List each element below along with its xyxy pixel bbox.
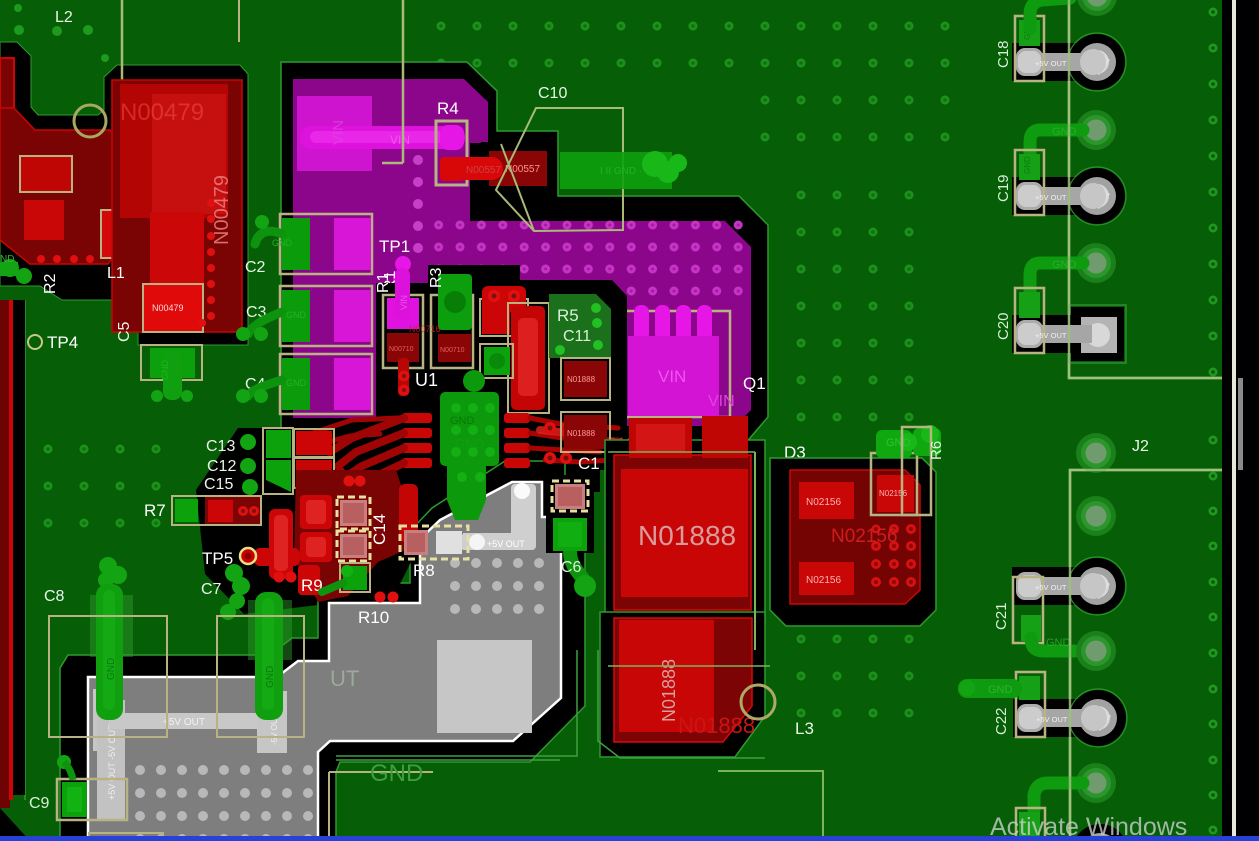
svg-text:N01888: N01888	[567, 375, 596, 384]
svg-text:N01888: N01888	[678, 713, 755, 738]
svg-text:+5V OUT: +5V OUT	[1035, 193, 1067, 202]
svg-text:N00479: N00479	[120, 99, 204, 126]
svg-text:U1: U1	[415, 370, 438, 390]
svg-text:N01888: N01888	[567, 429, 596, 438]
svg-text:N00557: N00557	[466, 165, 501, 176]
svg-text:R4: R4	[437, 99, 459, 118]
svg-text:C22: C22	[993, 707, 1010, 735]
svg-text:C15: C15	[204, 476, 233, 493]
svg-text:N01888: N01888	[638, 520, 736, 551]
svg-text:+5V OUT: +5V OUT	[1035, 583, 1067, 592]
svg-text:GND: GND	[886, 437, 911, 449]
svg-text:L2: L2	[55, 9, 73, 26]
svg-text:C20: C20	[995, 312, 1012, 340]
svg-text:+5V OUT: +5V OUT	[1035, 59, 1067, 68]
svg-text:C14: C14	[370, 514, 389, 545]
svg-text:C19: C19	[995, 174, 1012, 202]
svg-text:GND: GND	[160, 360, 170, 381]
svg-text:C5: C5	[116, 321, 133, 342]
svg-text:VIN: VIN	[658, 367, 686, 386]
svg-text:+5V OUT -5V OUT: +5V OUT -5V OUT	[107, 724, 117, 800]
svg-text:N01888: N01888	[659, 659, 679, 722]
svg-text:VIN: VIN	[399, 295, 409, 310]
svg-text:J2: J2	[1132, 438, 1149, 455]
svg-text:R6: R6	[928, 441, 945, 460]
svg-text:L1: L1	[107, 265, 125, 282]
svg-text:C7: C7	[201, 581, 222, 598]
svg-text:R5: R5	[557, 306, 579, 325]
svg-text:Q1: Q1	[743, 374, 766, 393]
svg-text:C10: C10	[538, 85, 567, 102]
svg-text:GND: GND	[272, 238, 293, 248]
svg-text:TP5: TP5	[202, 549, 233, 568]
svg-text:N00716: N00716	[409, 324, 441, 334]
svg-text:C21: C21	[993, 602, 1010, 630]
svg-text:N00710: N00710	[440, 347, 465, 354]
svg-text:+5V OUT: +5V OUT	[163, 717, 205, 728]
svg-text:GND: GND	[455, 436, 484, 451]
svg-text:L3: L3	[795, 719, 814, 738]
svg-text:R3: R3	[428, 267, 445, 288]
svg-text:N00710: N00710	[389, 346, 414, 353]
svg-text:R7: R7	[144, 501, 166, 520]
svg-text:VIN: VIN	[390, 133, 410, 147]
svg-text:C11: C11	[563, 328, 591, 345]
svg-text:GND: GND	[988, 684, 1013, 696]
svg-text:GND: GND	[265, 666, 276, 688]
svg-text:N00479: N00479	[152, 303, 184, 313]
svg-text:N02156: N02156	[806, 497, 841, 508]
svg-text:TP1: TP1	[379, 237, 410, 256]
svg-text:TP4: TP4	[47, 333, 78, 352]
svg-text:GND: GND	[1023, 156, 1032, 174]
svg-text:+5V OUT: +5V OUT	[487, 539, 525, 549]
svg-text:UT: UT	[330, 666, 359, 691]
svg-text:R8: R8	[413, 561, 435, 580]
svg-text:C9: C9	[29, 795, 50, 812]
svg-text:N00479: N00479	[211, 175, 233, 245]
svg-text:+5V OUT: +5V OUT	[1036, 715, 1068, 724]
svg-text:N02156: N02156	[831, 526, 898, 547]
svg-text:C12: C12	[207, 458, 236, 475]
svg-text:R2: R2	[42, 273, 59, 294]
svg-text:ND: ND	[0, 254, 14, 265]
svg-text:C6: C6	[561, 559, 582, 576]
svg-text:GND: GND	[286, 378, 307, 388]
svg-text:GND: GND	[1046, 637, 1071, 649]
svg-text:GND: GND	[370, 760, 423, 787]
svg-text:C13: C13	[206, 438, 235, 455]
svg-text:GND: GND	[106, 658, 117, 680]
svg-text:VIN: VIN	[708, 393, 735, 410]
svg-text:C1: C1	[578, 454, 600, 473]
svg-text:R1: R1	[375, 272, 392, 293]
svg-text:N02156: N02156	[879, 489, 908, 498]
svg-text:C2: C2	[245, 259, 266, 276]
svg-text:GND: GND	[1052, 259, 1077, 271]
svg-text:I II GND ·: I II GND ·	[600, 166, 642, 177]
svg-text:GND: GND	[286, 310, 307, 320]
svg-text:C8: C8	[44, 588, 65, 605]
svg-text:VIN: VIN	[330, 120, 347, 145]
svg-text:GND: GND	[450, 415, 475, 427]
svg-text:C18: C18	[995, 40, 1012, 68]
svg-text:GND: GND	[1052, 126, 1077, 138]
svg-text:N02156: N02156	[806, 575, 841, 586]
svg-text:R10: R10	[358, 608, 389, 627]
svg-text:+5V OUT: +5V OUT	[1035, 331, 1067, 340]
